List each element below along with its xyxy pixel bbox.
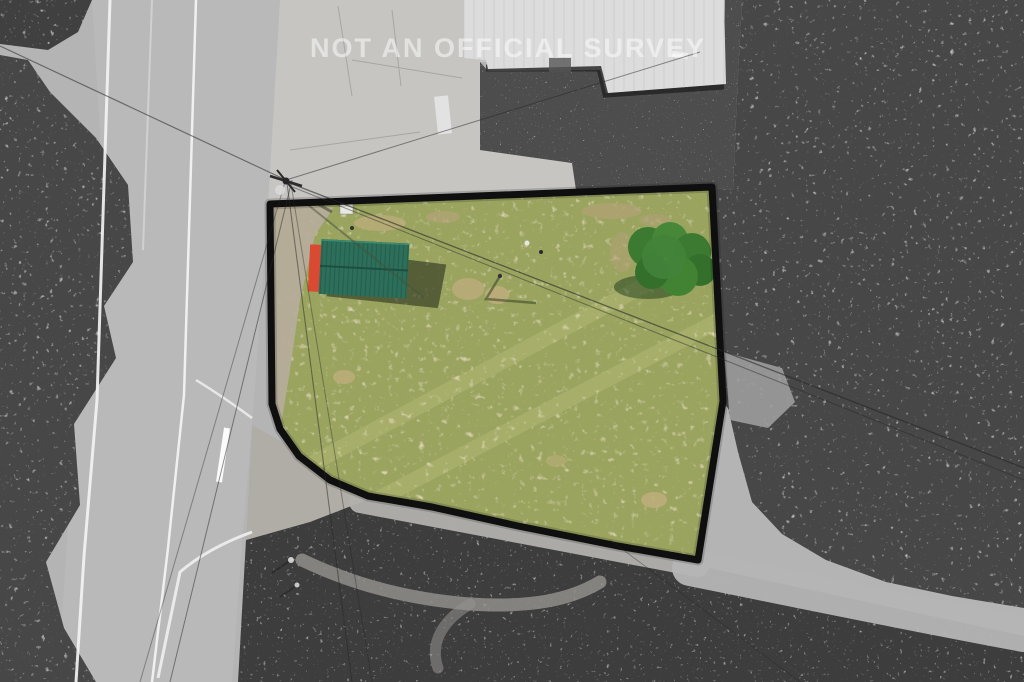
white-dot <box>525 241 530 246</box>
dark-dot <box>539 250 543 254</box>
transformer <box>275 185 285 195</box>
aerial-photo-canvas: NOT AN OFFICIAL SURVEY <box>0 0 1024 682</box>
ground-marker <box>350 226 354 230</box>
watermark-text: NOT AN OFFICIAL SURVEY <box>310 33 706 63</box>
mid-parcel-pole <box>498 274 502 278</box>
aerial-photo: NOT AN OFFICIAL SURVEY <box>0 0 1024 682</box>
